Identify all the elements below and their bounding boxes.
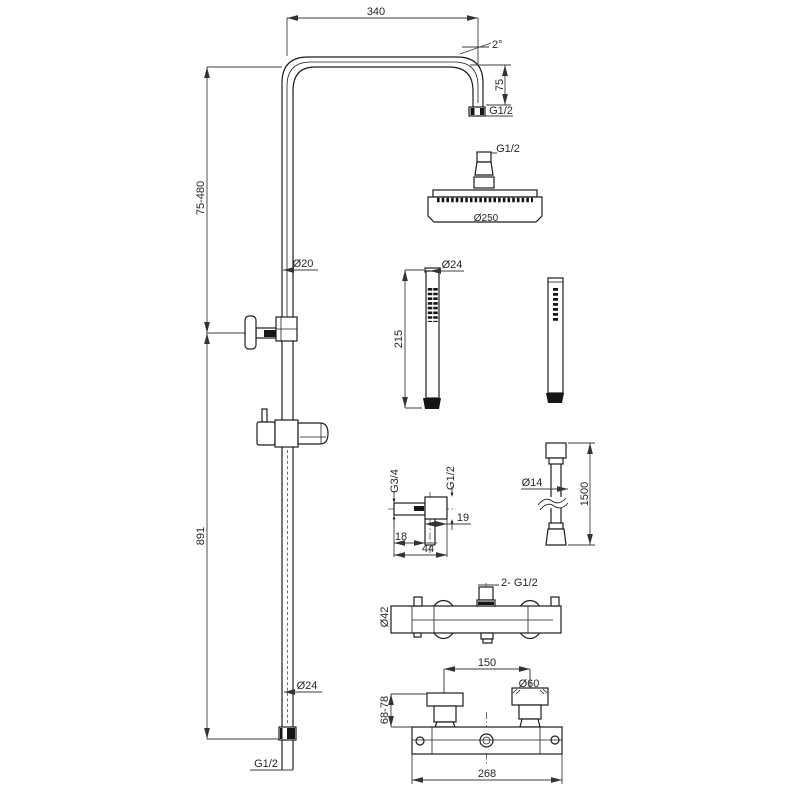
valve-bottom-left-tab	[414, 633, 421, 637]
dimension-valve-depth: 68-78	[379, 694, 427, 727]
head-top-plate	[433, 190, 537, 197]
hose-top-collar	[549, 458, 563, 464]
valve-right-wall-connector	[512, 688, 548, 727]
shower-hose: Ø14 1500	[521, 443, 595, 545]
shower-system-dimension-drawing: G1/2 Ø20	[0, 0, 800, 800]
holder-pin	[262, 409, 267, 422]
hose-bottom-collar	[549, 523, 563, 529]
riser-lower-label: 891	[195, 527, 207, 545]
riser-diameter-label: Ø20	[293, 258, 314, 270]
dimension-valve-overall-width: 268	[412, 754, 562, 784]
dimension-riser-lower: 891	[195, 333, 279, 739]
holder-hub	[275, 420, 298, 447]
dimension-hose-length: 1500	[568, 443, 595, 545]
dimension-riser-upper: 75-480	[195, 67, 282, 333]
dimension-arm-drop: 75	[470, 65, 511, 105]
technical-drawing-page: G1/2 Ø20	[0, 0, 800, 800]
valve-front-body	[412, 727, 562, 754]
dimension-arm-angle: 2°	[460, 39, 503, 54]
hand-shower-length-label: 215	[393, 330, 405, 348]
hand-shower-side-view	[546, 278, 564, 403]
valve-port-spacing-label: 150	[478, 657, 496, 669]
dimension-hand-shower-length: 215	[393, 270, 424, 408]
arm-outlet-thread-label: G1/2	[489, 105, 513, 117]
arm-drop-label: 75	[494, 79, 506, 91]
valve-body-diameter-label: Ø42	[379, 607, 391, 628]
holder-left-block	[257, 422, 275, 445]
hose-length-label: 1500	[579, 482, 591, 506]
valve-depth-label: 68-78	[379, 696, 391, 724]
dimension-elbow-overall-width: 44	[394, 543, 447, 555]
riser-upper-label: 75-480	[195, 181, 207, 215]
valve-connections-label: 2- G1/2	[501, 577, 538, 589]
holder-cradle	[298, 423, 328, 444]
wall-bracket	[245, 316, 297, 349]
bottom-diameter-label: Ø24	[297, 680, 318, 692]
valve-overall-width-label: 268	[478, 768, 496, 780]
hand-shower-front-view: Ø24 215	[393, 259, 464, 409]
elbow-overall-width-label: 44	[422, 543, 434, 555]
head-thread-label: G1/2	[496, 143, 520, 155]
hand-shower-side-base	[546, 393, 564, 403]
arm-length-label: 340	[367, 6, 385, 18]
wall-elbow: G3/4 G1/2 19 18 44	[388, 466, 471, 557]
elbow-inlet-thread-label: G3/4	[389, 469, 401, 493]
shower-arm-and-riser: G1/2 Ø20	[195, 6, 513, 770]
head-connector-top	[477, 152, 491, 162]
head-connector-mid	[475, 162, 493, 175]
hand-shower-base	[423, 398, 441, 409]
valve-top-left-tab	[414, 597, 422, 606]
hose-top-connector	[546, 443, 566, 458]
arm-angle-label: 2°	[492, 39, 503, 51]
elbow-outlet-length-label: 19	[457, 512, 469, 524]
elbow-wall-offset-label: 18	[395, 531, 407, 543]
valve-top-body	[391, 606, 561, 633]
bracket-knob	[245, 316, 256, 349]
bottom-thread-label: G1/2	[254, 758, 278, 770]
mixer-valve-front-view: 150 Ø60 6	[379, 657, 562, 784]
hose-bottom-cone	[546, 529, 566, 545]
hose-diameter-label: Ø14	[522, 477, 543, 489]
dimension-arm-length: 340	[287, 6, 478, 64]
hand-shower-diameter-label: Ø24	[442, 259, 463, 271]
hose-break-symbol	[538, 498, 566, 505]
head-connector-base	[474, 177, 494, 188]
elbow-body	[425, 497, 447, 519]
overhead-shower-head: G1/2 Ø250	[428, 143, 542, 224]
valve-left-wall-connector	[427, 693, 463, 727]
valve-top-right-tab	[551, 597, 559, 606]
elbow-outlet-thread-label: G1/2	[445, 466, 457, 490]
mixer-valve-top-view: 2- G1/2 Ø42	[379, 577, 561, 645]
head-diameter-label: Ø250	[474, 213, 499, 224]
valve-bottom-center-port	[481, 633, 493, 639]
valve-center-port	[479, 587, 493, 600]
riser-bottom-connector: G1/2 Ø24	[250, 680, 322, 770]
